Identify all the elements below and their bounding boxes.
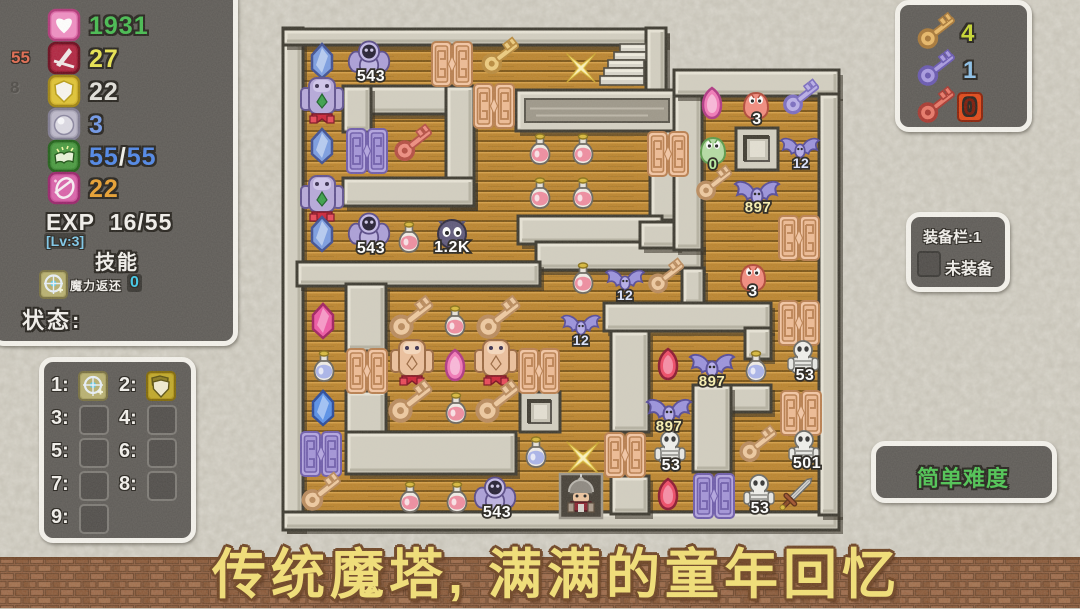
svg-text:12: 12 (617, 287, 634, 303)
svg-text:543: 543 (357, 240, 385, 257)
svg-text:53: 53 (751, 500, 770, 517)
svg-text:3: 3 (752, 111, 761, 128)
svg-text:543: 543 (483, 504, 511, 521)
svg-text:501: 501 (793, 455, 821, 472)
svg-text:897: 897 (745, 199, 772, 216)
svg-text:53: 53 (796, 367, 815, 384)
svg-text:897: 897 (699, 373, 726, 390)
svg-text:12: 12 (793, 155, 810, 171)
svg-text:12: 12 (573, 332, 590, 348)
svg-text:897: 897 (656, 418, 683, 435)
svg-text:543: 543 (357, 68, 385, 85)
svg-text:53: 53 (662, 457, 681, 474)
svg-text:1.2K: 1.2K (434, 239, 470, 256)
svg-text:0: 0 (709, 156, 718, 173)
svg-text:3: 3 (748, 283, 757, 300)
